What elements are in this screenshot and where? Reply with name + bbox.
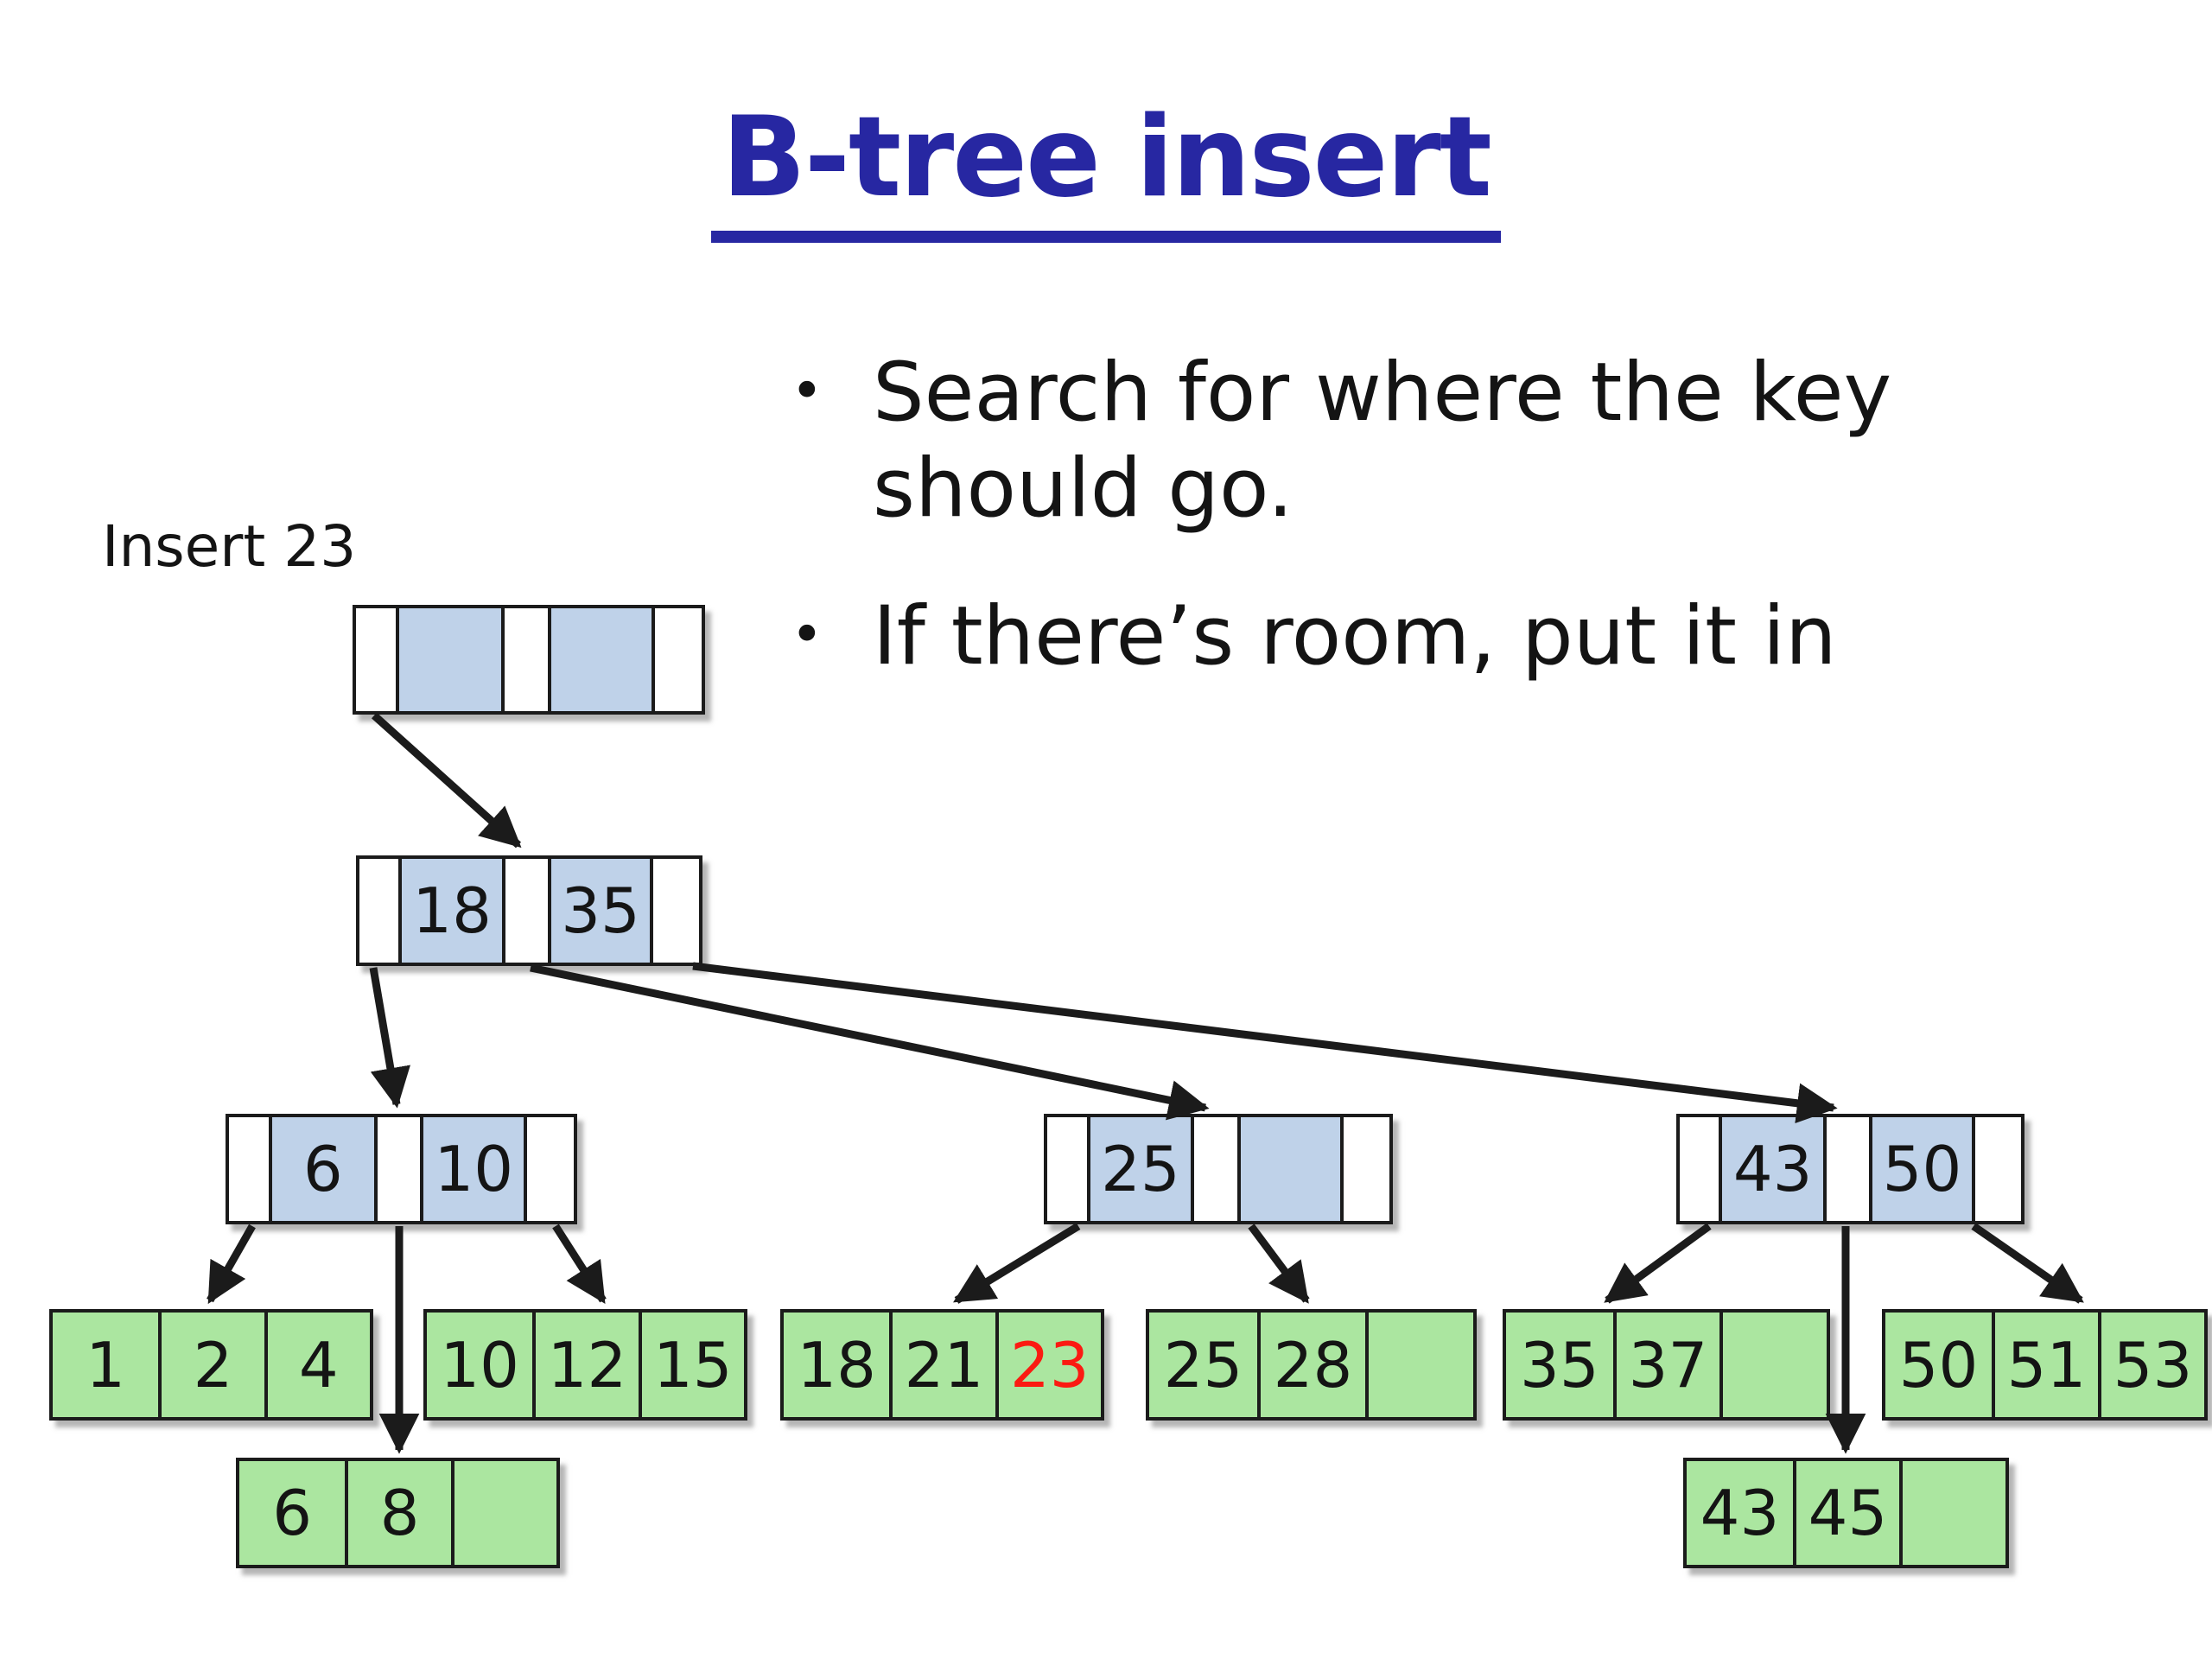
pointer-cell bbox=[502, 859, 548, 963]
pointer-cell bbox=[1680, 1117, 1719, 1221]
pointer-cell bbox=[652, 608, 702, 711]
node-6-10: 6 10 bbox=[226, 1114, 577, 1224]
edge-node-6-10-to-leaf-10-12-15 bbox=[556, 1226, 603, 1300]
leaf-cell bbox=[1899, 1461, 2005, 1565]
bullet-list: • Search for where the key should go. • … bbox=[791, 346, 2026, 737]
bullet-dot-icon: • bbox=[791, 346, 873, 537]
leaf-10-12-15: 10 12 15 bbox=[423, 1309, 747, 1421]
leaf-cell: 50 bbox=[1885, 1313, 1992, 1417]
key-text: 50 bbox=[1883, 1133, 1962, 1205]
edge-node-25-to-leaf-18-21-23 bbox=[957, 1226, 1078, 1300]
key-text: 10 bbox=[440, 1329, 519, 1402]
page-title: B-tree insert bbox=[0, 93, 2212, 222]
key-cell bbox=[396, 608, 501, 711]
key-text-inserted: 23 bbox=[1010, 1329, 1090, 1402]
node-25: 25 bbox=[1044, 1114, 1393, 1224]
leaf-cell: 10 bbox=[427, 1313, 532, 1417]
key-cell: 35 bbox=[548, 859, 650, 963]
leaf-cell bbox=[1719, 1313, 1827, 1417]
leaf-cell: 12 bbox=[532, 1313, 638, 1417]
key-text: 25 bbox=[1164, 1329, 1243, 1402]
leaf-cell: 25 bbox=[1149, 1313, 1257, 1417]
pointer-cell bbox=[1340, 1117, 1389, 1221]
edge-node-18-35-to-node-6-10 bbox=[373, 968, 397, 1104]
key-text: 50 bbox=[1899, 1329, 1979, 1402]
leaf-6-8: 6 8 bbox=[236, 1458, 560, 1568]
leaf-18-21-23: 18 21 23 bbox=[780, 1309, 1104, 1421]
leaf-cell: 43 bbox=[1687, 1461, 1793, 1565]
leaf-cell: 37 bbox=[1613, 1313, 1720, 1417]
key-cell: 6 bbox=[269, 1117, 374, 1221]
key-cell: 10 bbox=[420, 1117, 524, 1221]
slide-canvas: { "title": "B-tree insert", "bullet_glyp… bbox=[0, 0, 2212, 1659]
edge-node-43-50-to-leaf-50-51-53 bbox=[1974, 1226, 2081, 1300]
edge-node-6-10-to-leaf-1-2-4 bbox=[210, 1226, 252, 1300]
leaf-cell: 18 bbox=[784, 1313, 889, 1417]
leaf-35-37: 35 37 bbox=[1503, 1309, 1830, 1421]
leaf-cell: 45 bbox=[1793, 1461, 1899, 1565]
node-root bbox=[353, 605, 705, 715]
bullet-text: Search for where the key should go. bbox=[873, 346, 2026, 537]
insert-annotation: Insert 23 bbox=[102, 513, 356, 580]
key-text: 43 bbox=[1733, 1133, 1813, 1205]
edge-node-25-to-leaf-25-28 bbox=[1251, 1226, 1306, 1300]
key-text: 28 bbox=[1274, 1329, 1353, 1402]
key-text: 15 bbox=[653, 1329, 733, 1402]
pointer-cell bbox=[501, 608, 548, 711]
key-cell: 43 bbox=[1719, 1117, 1822, 1221]
edge-node-43-50-to-leaf-35-37 bbox=[1607, 1226, 1709, 1300]
pointer-cell bbox=[1191, 1117, 1236, 1221]
key-text: 51 bbox=[2007, 1329, 2087, 1402]
bullet-item: • If there’s room, put it in bbox=[791, 589, 2026, 685]
key-text: 10 bbox=[434, 1133, 513, 1205]
bullet-dot-icon: • bbox=[791, 589, 873, 685]
bullet-item: • Search for where the key should go. bbox=[791, 346, 2026, 537]
leaf-cell: 53 bbox=[2098, 1313, 2204, 1417]
pointer-cell bbox=[650, 859, 699, 963]
key-text: 12 bbox=[548, 1329, 627, 1402]
leaf-cell bbox=[1365, 1313, 1473, 1417]
pointer-cell bbox=[1972, 1117, 2021, 1221]
edge-node-18-35-to-node-43-50 bbox=[693, 966, 1834, 1108]
leaf-25-28: 25 28 bbox=[1146, 1309, 1477, 1421]
leaf-cell: 6 bbox=[239, 1461, 345, 1565]
pointer-cell bbox=[374, 1117, 421, 1221]
leaf-cell: 1 bbox=[53, 1313, 158, 1417]
node-18-35: 18 35 bbox=[356, 855, 702, 966]
key-cell bbox=[548, 608, 652, 711]
pointer-cell bbox=[359, 859, 398, 963]
key-text: 1 bbox=[86, 1329, 125, 1402]
key-text: 35 bbox=[1520, 1329, 1599, 1402]
leaf-cell: 8 bbox=[345, 1461, 450, 1565]
key-text: 37 bbox=[1629, 1329, 1708, 1402]
leaf-cell: 35 bbox=[1506, 1313, 1613, 1417]
pointer-cell bbox=[524, 1117, 574, 1221]
leaf-cell bbox=[451, 1461, 556, 1565]
edge-root-to-node-18-35 bbox=[374, 715, 518, 845]
key-text: 6 bbox=[272, 1477, 312, 1549]
leaf-cell: 51 bbox=[1992, 1313, 2098, 1417]
key-text: 6 bbox=[303, 1133, 343, 1205]
key-text: 2 bbox=[194, 1329, 233, 1402]
pointer-cell bbox=[229, 1117, 269, 1221]
key-text: 35 bbox=[561, 874, 640, 947]
key-text: 43 bbox=[1700, 1477, 1780, 1549]
key-text: 18 bbox=[797, 1329, 876, 1402]
key-text: 8 bbox=[380, 1477, 420, 1549]
bullet-text: If there’s room, put it in bbox=[873, 589, 1837, 685]
key-text: 4 bbox=[299, 1329, 339, 1402]
leaf-cell: 2 bbox=[158, 1313, 264, 1417]
leaf-50-51-53: 50 51 53 bbox=[1882, 1309, 2208, 1421]
key-cell: 18 bbox=[398, 859, 502, 963]
key-cell: 50 bbox=[1869, 1117, 1972, 1221]
leaf-cell: 21 bbox=[889, 1313, 995, 1417]
pointer-cell bbox=[1047, 1117, 1087, 1221]
pointer-cell bbox=[356, 608, 396, 711]
key-cell: 25 bbox=[1087, 1117, 1192, 1221]
leaf-cell: 15 bbox=[639, 1313, 744, 1417]
leaf-1-2-4: 1 2 4 bbox=[49, 1309, 373, 1421]
key-text: 18 bbox=[412, 874, 492, 947]
key-text: 45 bbox=[1808, 1477, 1888, 1549]
key-text: 25 bbox=[1101, 1133, 1180, 1205]
leaf-cell: 4 bbox=[264, 1313, 370, 1417]
key-text: 21 bbox=[905, 1329, 984, 1402]
key-text: 53 bbox=[2113, 1329, 2193, 1402]
leaf-43-45: 43 45 bbox=[1683, 1458, 2009, 1568]
node-43-50: 43 50 bbox=[1676, 1114, 2024, 1224]
key-cell bbox=[1237, 1117, 1340, 1221]
edge-node-18-35-to-node-25 bbox=[531, 968, 1205, 1108]
pointer-cell bbox=[1823, 1117, 1869, 1221]
leaf-cell-highlighted: 23 bbox=[995, 1313, 1101, 1417]
page-title-text: B-tree insert bbox=[711, 93, 1501, 243]
leaf-cell: 28 bbox=[1257, 1313, 1365, 1417]
